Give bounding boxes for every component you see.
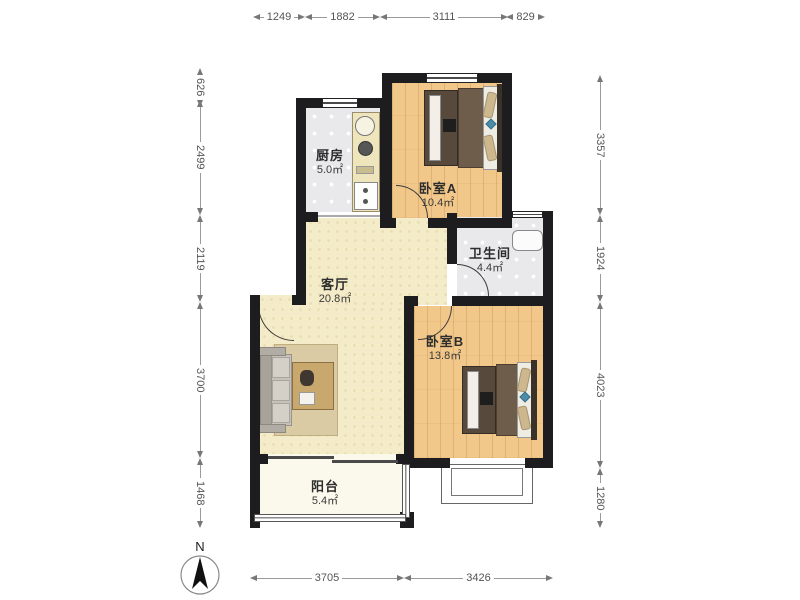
stove-burner-1 [363,188,368,193]
balcony-label: 阳台 5.4㎡ [290,479,360,508]
balcony-glass-bottom [254,514,406,522]
dimension-arrow [597,521,603,528]
compass-icon [179,554,221,596]
dimension-value: 2499 [194,142,206,172]
bathroom-name: 卫生间 [450,246,530,261]
dimension-arrow [305,14,312,20]
balcony-sliding-door-panel-2 [332,460,398,463]
wall-bedroom-a-bottom-right [428,218,512,228]
dimension-line [458,17,501,18]
bathroom-label: 卫生间 4.4㎡ [450,246,530,275]
dimension-line [600,160,601,208]
dimension-segment-right-0: 3357 [593,75,607,215]
dimension-arrow [597,468,603,475]
wall-bedroom-a-right [502,73,512,221]
dimension-value: 626 [194,75,206,99]
dimension-arrow [250,575,257,581]
dimension-segment-right-3: 1280 [593,468,607,528]
kitchen-name: 厨房 [295,148,365,163]
wall-bedroom-a-top-left [382,73,426,83]
dimension-value: 3357 [594,130,606,160]
dimension-line [200,508,201,521]
living-room-name: 客厅 [300,277,370,292]
kitchen-label: 厨房 5.0㎡ [295,148,365,177]
table-tray [299,392,315,405]
bathroom-window [512,211,543,218]
sofa-cushion-2 [272,380,290,401]
bedroom-a-blanket [458,88,484,168]
dimension-arrow [197,302,203,309]
wall-left-outer [250,295,260,528]
bedroom-b-tv [480,392,493,405]
dimension-arrow [197,208,203,215]
dimension-value: 3426 [463,572,493,584]
dimension-segment-left-0: 626 [193,75,207,100]
dimension-segment-top-1: 1882 [305,10,380,24]
wall-bathroom-right [543,211,553,306]
wall-kitchen-bedroom-a [380,108,392,222]
compass-north-label: N [178,540,222,554]
dimension-value: 2119 [194,244,206,274]
compass: N [178,540,222,598]
dimension-line [600,475,601,483]
dimension-value: 3111 [430,11,459,23]
balcony-sliding-door-panel-1 [268,456,334,459]
dimension-arrow [197,215,203,222]
dimension-line [358,17,373,18]
sofa-cushion-1 [272,357,290,378]
dimension-value: 4023 [594,370,606,400]
dimension-arrow [197,521,203,528]
dimension-value: 3700 [194,365,206,395]
bedroom-a-area: 10.4㎡ [403,197,473,210]
dimension-arrow [538,14,545,20]
sofa-cushion-3 [272,403,290,423]
dimension-arrow [197,68,203,75]
dimension-line [600,309,601,370]
dimension-segment-top-0: 1249 [253,10,305,24]
dimension-value: 1280 [594,483,606,513]
dimension-arrow [380,14,387,20]
bedroom-b-blanket [496,364,518,436]
dimension-segment-bottom-0: 3705 [250,571,404,585]
dimension-line [200,222,201,244]
dimension-line [600,82,601,130]
wall-bedroom-b-bottom-right [525,458,553,468]
table-decor [300,370,314,386]
dimension-line [312,17,327,18]
dimension-segment-left-2: 2119 [193,215,207,302]
dimension-line [200,173,201,208]
wall-bedroom-a-bottom-left [380,218,396,228]
dimension-arrow [404,575,411,581]
dimension-segment-bottom-1: 3426 [404,571,553,585]
bay-window-inner [451,468,523,496]
bedroom-a-wardrobe-panel [429,95,441,161]
dimension-segment-top-2: 3111 [380,10,508,24]
dimension-line [600,400,601,461]
dimension-arrow [597,295,603,302]
wall-bedroom-b-top [452,296,553,306]
wall-left-upper [296,98,306,305]
dimension-arrow [546,575,553,581]
kitchen-area: 5.0㎡ [295,164,365,177]
living-room-label: 客厅 20.8㎡ [300,277,370,306]
dimension-line [342,578,397,579]
dimension-arrow [397,575,404,581]
wall-living-bedroom-b [404,296,414,462]
wall-bedroom-b-bottom-left [404,458,450,468]
bedroom-b-label: 卧室B 13.8㎡ [410,334,480,363]
dimension-line [200,465,201,478]
balcony-area: 5.4㎡ [290,495,360,508]
bedroom-a-label: 卧室A 10.4㎡ [403,181,473,210]
dimension-value: 1882 [327,11,357,23]
dimension-segment-right-2: 4023 [593,302,607,468]
dimension-segment-right-1: 1924 [593,215,607,302]
dimension-arrow [197,100,203,107]
bedroom-b-headboard [531,360,537,440]
dimension-line [600,274,601,295]
dimension-arrow [197,451,203,458]
bedroom-b-name: 卧室B [410,334,480,349]
wall-balcony-stub-left [250,454,268,464]
dimension-segment-left-3: 3700 [193,302,207,458]
bedroom-a-tv [443,119,456,132]
bedroom-b-wardrobe-panel [467,371,479,429]
dimension-arrow [597,215,603,222]
dimension-line [200,107,201,142]
wall-kitchen-bottom-stub [296,212,318,222]
dimension-arrow [253,14,260,20]
bedroom-b-area: 13.8㎡ [410,350,480,363]
dimension-segment-left-1: 2499 [193,100,207,215]
dimension-arrow [597,461,603,468]
kitchen-window [322,98,358,108]
dimension-arrow [597,302,603,309]
dimension-value: 829 [513,11,537,23]
floor-plan-canvas: 厨房 5.0㎡ 卧室A 10.4㎡ 卫生间 4.4㎡ 客厅 20.8㎡ 卧室B … [0,0,800,600]
dimension-value: 1249 [264,11,294,23]
dimension-arrow [506,14,513,20]
stove-burner-2 [363,199,368,204]
dimension-line [494,578,546,579]
bedroom-a-name: 卧室A [403,181,473,196]
bathroom-area: 4.4㎡ [450,262,530,275]
dimension-line [600,513,601,521]
kitchen-threshold-line [318,215,380,217]
balcony-name: 阳台 [290,479,360,494]
kitchen-stove [354,182,378,210]
dimension-line [200,395,201,451]
dimension-arrow [597,208,603,215]
dimension-segment-top-3: 829 [508,10,543,24]
living-room-area: 20.8㎡ [300,293,370,306]
kitchen-sink [355,116,375,136]
dimension-segment-left-4: 1468 [193,458,207,528]
dimension-line [200,273,201,295]
dimension-line [600,222,601,243]
dimension-arrow [197,458,203,465]
dimension-line [411,578,463,579]
dimension-line [257,578,312,579]
dimension-value: 1468 [194,478,206,508]
dimension-line [200,309,201,365]
dimension-arrow [597,75,603,82]
balcony-glass-right [402,464,410,518]
dimension-value: 3705 [312,572,342,584]
dimension-arrow [298,14,305,20]
sofa-armrest-top [259,347,286,356]
sofa-armrest-bottom [259,424,286,433]
wall-bedroom-b-right [543,306,553,468]
dimension-arrow [197,295,203,302]
dimension-arrow [373,14,380,20]
bedroom-a-window [426,73,478,83]
dimension-value: 1924 [594,243,606,273]
dimension-line [387,17,430,18]
